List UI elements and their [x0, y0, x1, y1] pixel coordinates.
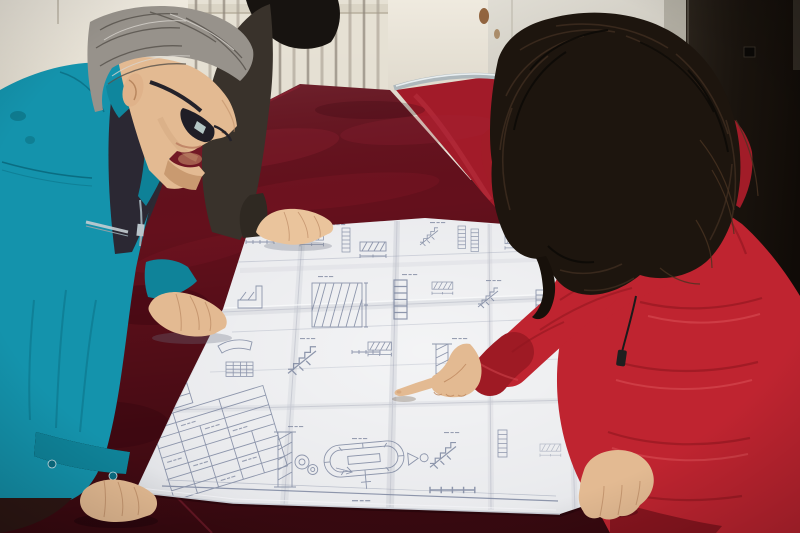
wall-stain [479, 8, 489, 24]
photo-blueprint-review: Two workers lean over a large folded eng… [0, 0, 800, 533]
wall-stain-small [494, 29, 500, 39]
photo-canvas [0, 0, 800, 533]
man-cuff-button2 [109, 472, 117, 480]
woman-cuff [490, 352, 514, 376]
woman-fingernail [397, 390, 402, 393]
door-latch [744, 47, 755, 57]
man-zipper-pull [136, 224, 144, 237]
man-cuff-button1 [48, 460, 56, 468]
